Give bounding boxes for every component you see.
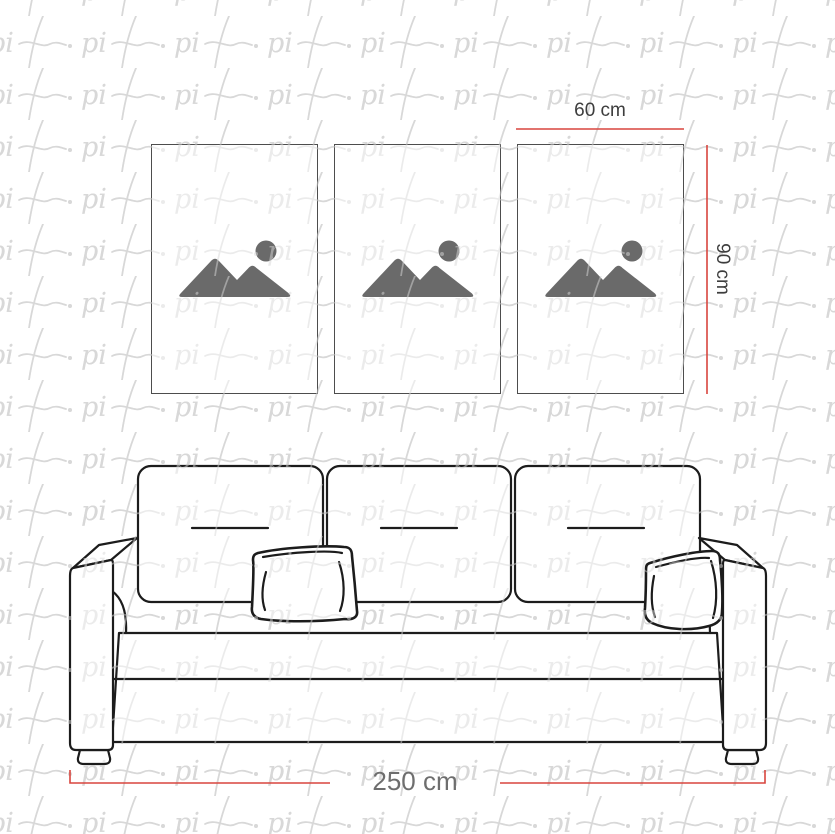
- artwork-frame: [151, 144, 318, 394]
- sofa-foot: [78, 750, 758, 764]
- artwork-frame: [517, 144, 684, 394]
- art-width-label: 60 cm: [516, 100, 684, 122]
- sofa-width-label: 250 cm: [315, 766, 515, 796]
- size-guide-diagram: { "scene": { "description": "Wall art si…: [0, 0, 835, 834]
- image-placeholder-icon: [540, 236, 662, 302]
- image-placeholder-icon: [174, 236, 296, 302]
- sofa-pillow-left: [252, 546, 357, 621]
- sofa-armrest-left: [70, 538, 137, 750]
- art-height-label: 90 cm: [711, 231, 733, 307]
- sofa-back-cushions: [138, 466, 700, 602]
- watermark-background: pi: [0, 0, 835, 834]
- sofa-seat-base: [103, 591, 733, 755]
- watermark-overlay: pi: [0, 0, 835, 834]
- sofa-armrest-right: [699, 538, 766, 750]
- dimension-lines: [0, 0, 835, 834]
- artwork-frame: [334, 144, 501, 394]
- sofa-pillow-right: [645, 551, 723, 629]
- image-placeholder-icon: [357, 236, 479, 302]
- sofa-drawing: [0, 0, 835, 834]
